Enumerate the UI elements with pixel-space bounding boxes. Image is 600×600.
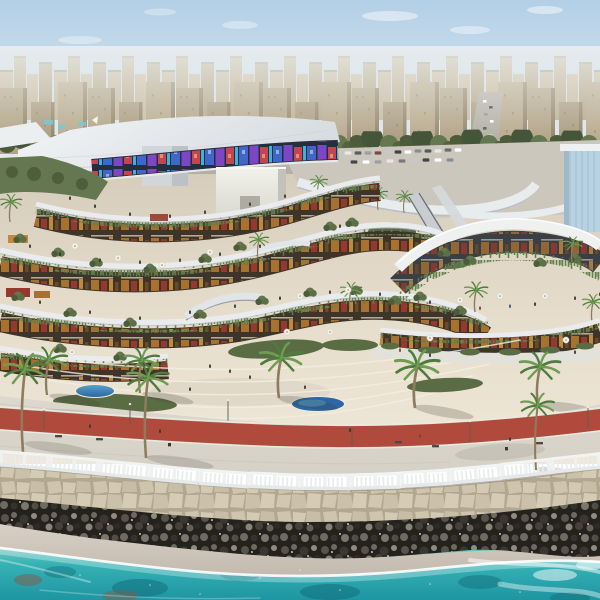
rendering-canvas: Aerial rendering of a curved terraced se… <box>0 0 600 600</box>
litter-bin <box>168 443 171 446</box>
architectural-rendering: Aerial rendering of a curved terraced se… <box>0 0 600 600</box>
screenshot-root: Aerial rendering of a curved terraced se… <box>0 0 600 600</box>
glass-office-building <box>560 144 600 232</box>
litter-bin <box>505 447 508 450</box>
